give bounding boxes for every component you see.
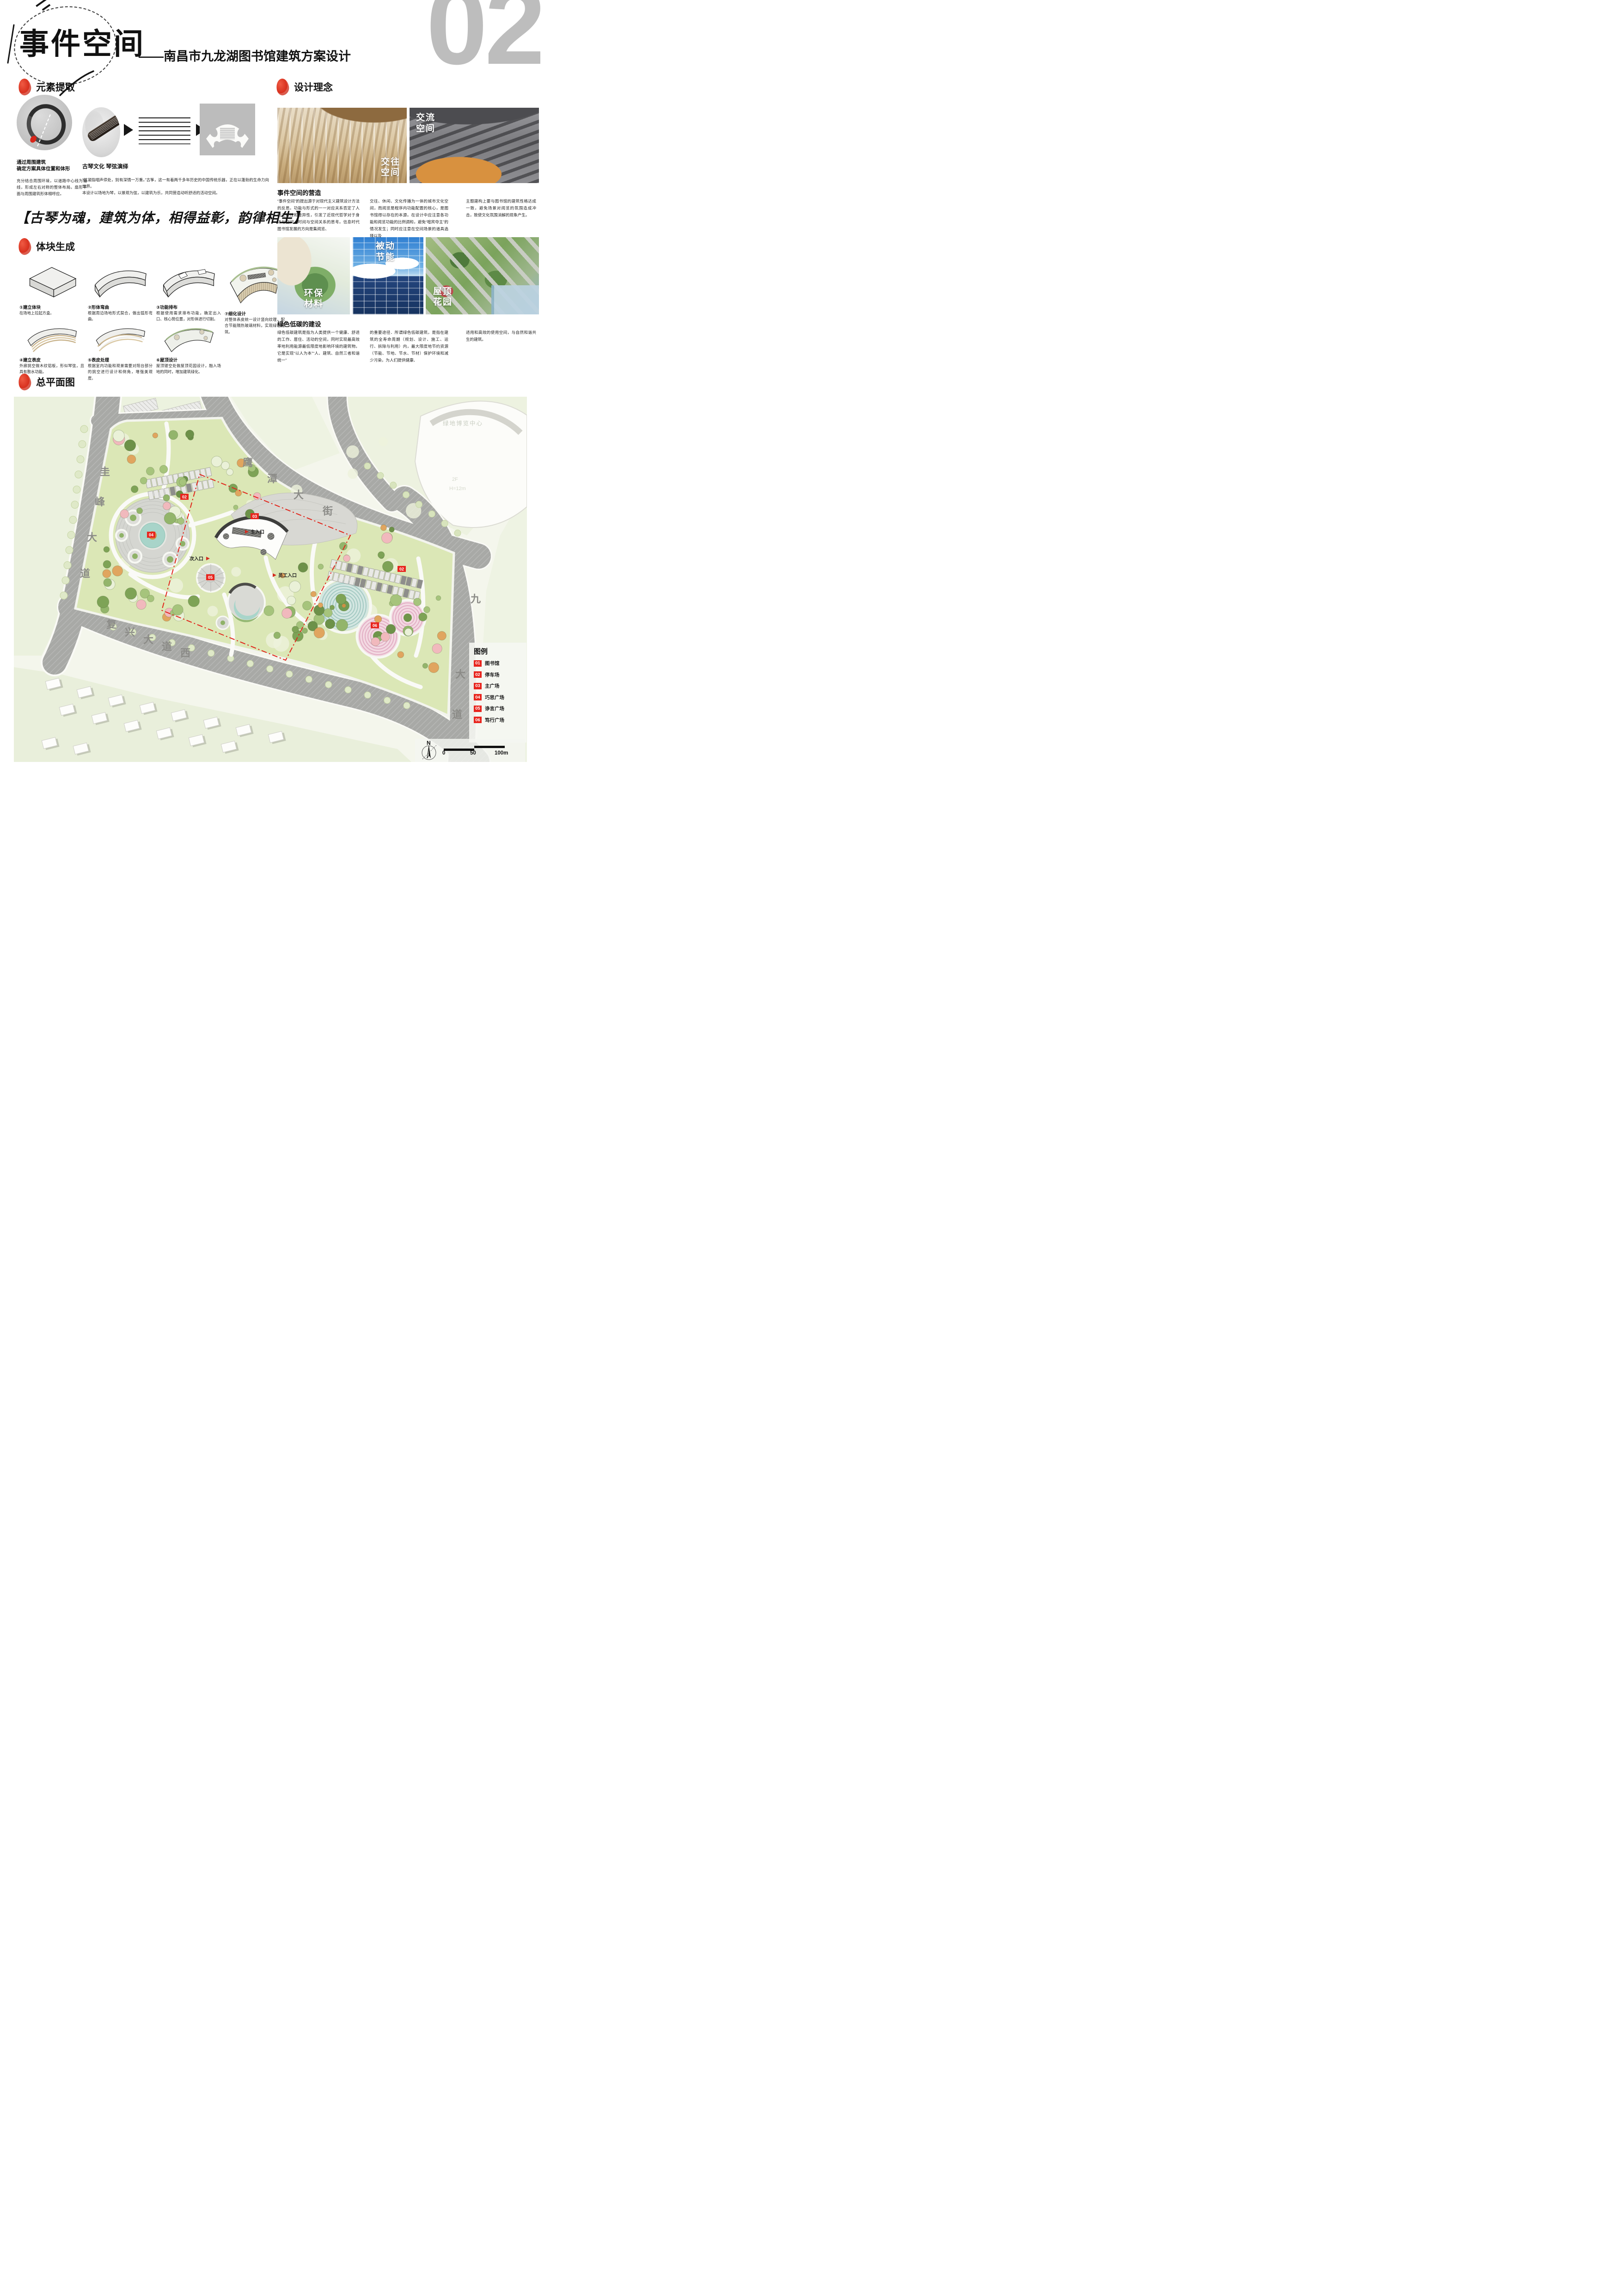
concept-text-col3: 主题建构上要与图书馆的建筑性格达成一致，避免场景对阅览的氛围造成冲击，致使文化氛… (466, 198, 536, 219)
map-scale-panel: N 0 50 100m (415, 739, 525, 762)
expo-center-label: 绿地博览中心 (443, 420, 483, 427)
subsection-title: 事件空间的营造 (277, 188, 321, 197)
presentation-board: 事件空间 ——南昌市九龙湖图书馆建筑方案设计 02 元素提取 通过周 (0, 0, 540, 765)
road-label-char: 圭 (100, 466, 110, 478)
massing-step-3: ③功能排布 根据使用需求排布功能，确定出入口、核心筒位置，对形体进行切割。 (156, 263, 221, 323)
road-label-char: 街 (322, 505, 333, 517)
entrance-secondary-label: 次入口 (190, 556, 203, 562)
marker-parking-west: 02 (180, 494, 189, 500)
road-label-char: 复 (106, 619, 117, 630)
legend-item: 05 诤言广场 (474, 705, 522, 712)
legend-number-badge: 05 (474, 706, 482, 712)
svg-text:02: 02 (399, 567, 404, 571)
road-label-char: 峰 (95, 496, 105, 508)
section-title: 元素提取 (36, 80, 75, 94)
subsection-title: 绿色低碳的建设 (277, 319, 321, 328)
caption-site-context: 通过周围建筑 确定方案具体位置和体形 (17, 159, 91, 172)
road-label-char: 大 (455, 669, 465, 680)
red-ink-seal-icon (17, 237, 32, 256)
seven-strings-icon (139, 117, 190, 144)
photo-communication-space: 交流 空间 (410, 108, 539, 183)
section-element-extraction-header: 元素提取 (18, 79, 75, 95)
page-title: 事件空间 (19, 20, 145, 63)
road-label-char: 道 (162, 641, 172, 652)
building-plan-card (200, 104, 255, 155)
guqin-ink-image (82, 107, 120, 157)
massing-step-2: ②形体弯曲 根据周边场地形式契合，做出弧形弯曲。 (88, 263, 153, 323)
section-title: 设计理念 (294, 80, 333, 94)
massing-diagram-notch (156, 263, 221, 301)
photo-eco-material: 环保 材料 (277, 237, 350, 314)
photo-label: 环保 材料 (304, 288, 324, 310)
expo-height-label: H=12m (449, 486, 466, 491)
fan-building-glyph (200, 104, 255, 155)
concept-text-col2: 交往、休闲、文化传播为一体的城市文化空间，而阅览是程序内功能配置的核心，是图书馆… (370, 198, 448, 239)
scale-bar: 0 50 100m (444, 744, 505, 756)
caption-guqin-culture: 古琴文化 琴弦演绎 (82, 163, 193, 170)
marker-main-plaza: 03 (251, 513, 259, 519)
road-label-char: 大 (143, 634, 153, 645)
red-ink-seal-icon (17, 373, 32, 391)
arrow-right-icon (124, 124, 133, 136)
text-guqin-culture: “弦凝指咽声停处，别有深情一万重。”古筝，这一有着两千多年历史的中国传统乐器，正… (82, 177, 269, 196)
massing-diagram-detail (225, 259, 285, 307)
green-text-col2: 的重要途径．所谓绿色低碳建筑，是指在建筑的全寿命周期（规划、设计、施工、运行、拆… (370, 329, 448, 364)
massing-diagram-skin2 (88, 324, 153, 353)
calligraphy-motto: 【古琴为魂，建筑为体，相得益彰，韵律相生】 (16, 207, 273, 227)
svg-text:N: N (427, 740, 431, 746)
site-satellite-image (17, 95, 72, 150)
legend-item: 06 笃行广场 (474, 717, 522, 724)
marker-zhengyan-plaza: 05 (206, 574, 214, 580)
legend-item: 02 停车场 (474, 671, 522, 678)
photo-reading-space: 交往 空间 (277, 108, 407, 183)
legend-number-badge: 03 (474, 683, 482, 689)
svg-text:03: 03 (252, 514, 257, 519)
map-legend: 图例 01 图书馆 02 停车场 03 主广场 04 巧思广场 05 诤言广场 … (469, 643, 526, 743)
legend-number-badge: 06 (474, 717, 482, 723)
photo-label: 交往 空间 (381, 157, 400, 179)
legend-number-badge: 01 (474, 660, 482, 667)
photo-roof-garden: 屋顶 花园 (426, 237, 539, 314)
master-plan-map: 绿地博览中心 2F H=12m (14, 397, 527, 762)
board-number: 02 (426, 0, 540, 81)
section-design-concept-header: 设计理念 (276, 79, 333, 95)
page-subtitle: ——南昌市九龙湖图书馆建筑方案设计 (139, 46, 351, 64)
massing-step-6: ⑥屋顶设计 屋顶镂空处做屋顶花园设计，融入场地的同时，增加建筑绿化。 (156, 324, 221, 375)
road-label-char: 道 (452, 709, 462, 720)
legend-title: 图例 (474, 646, 522, 656)
massing-step-4: ④建立表皮 外廊挑空做木纹铝板，形似琴弦，且具有散水功能。 (19, 324, 84, 375)
massing-diagram-roof (156, 324, 221, 353)
expo-floors-label: 2F (452, 477, 458, 482)
marker-qiaosi-plaza: 04 (147, 532, 155, 538)
massing-diagram-skin (19, 324, 84, 353)
photo-passive-energy: 被动 节能 (353, 237, 423, 314)
svg-text:04: 04 (149, 533, 153, 537)
road-label-char: 道 (80, 568, 90, 579)
legend-number-badge: 04 (474, 694, 482, 700)
road-label-char: 西 (180, 647, 190, 659)
road-label-char: 大 (294, 489, 304, 501)
legend-number-badge: 02 (474, 671, 482, 678)
road-label-char: 九 (470, 593, 481, 605)
legend-item: 01 图书馆 (474, 660, 522, 667)
entrance-main-label: 主入口 (251, 529, 264, 535)
svg-text:06: 06 (373, 623, 377, 628)
road-label-char: 潭 (267, 473, 277, 485)
red-ink-seal-icon (275, 78, 290, 96)
road-label-char: 兴 (125, 626, 135, 638)
photo-label: 屋顶 花园 (433, 286, 453, 308)
massing-step-1: ①建立体块 在场地上拉起方盒。 (19, 263, 84, 316)
road-label-char: 大 (87, 532, 97, 543)
red-ink-seal-icon (17, 78, 32, 96)
section-master-plan-header: 总平面图 (18, 374, 75, 390)
section-title: 体块生成 (36, 239, 75, 253)
north-arrow-icon: N (419, 740, 439, 761)
section-massing-header: 体块生成 (18, 238, 75, 255)
brush-stroke-icon (7, 24, 14, 63)
legend-item: 04 巧思广场 (474, 694, 522, 701)
marker-duxing-plaza: 06 (371, 622, 379, 628)
photo-label: 交流 空间 (416, 112, 435, 135)
massing-diagram-curve (88, 263, 153, 301)
site-plan-svg: 绿地博览中心 2F H=12m (14, 397, 527, 762)
massing-step-5: ⑤表皮处理 根据室内功能和观景需要对阳台部分的挑空进行设计和倒角，增强美观度。 (88, 324, 153, 381)
green-text-col1: 绿色低碳建筑是指为人类提供一个健康、舒适的工作、居住、活动的空间，同时实现最高效… (277, 329, 360, 364)
massing-step-7: ⑦细化设计 对整体表皮统一设计竖向纹理，配合节能隔热玻璃材料，实现绿色建筑。 (225, 259, 285, 335)
brush-stroke-icon (36, 0, 47, 7)
svg-text:02: 02 (182, 495, 187, 499)
text-site-context: 充分结合周围环境，以道路中心线为轴线，形成左右对称的整体布局。扇形平面与周围建筑… (17, 178, 87, 197)
entrance-staff-label: 员工入口 (278, 573, 297, 578)
legend-item: 03 主广场 (474, 682, 522, 689)
green-text-col3: 适用和高效的使用空间，与自然和谐共生的建筑。 (466, 329, 536, 343)
marker-parking-east: 02 (398, 566, 406, 572)
svg-text:05: 05 (208, 575, 213, 580)
section-title: 总平面图 (36, 375, 75, 389)
photo-label: 被动 节能 (376, 241, 395, 263)
massing-diagram-box (19, 263, 84, 301)
road-label-char: 鹰 (243, 457, 253, 468)
